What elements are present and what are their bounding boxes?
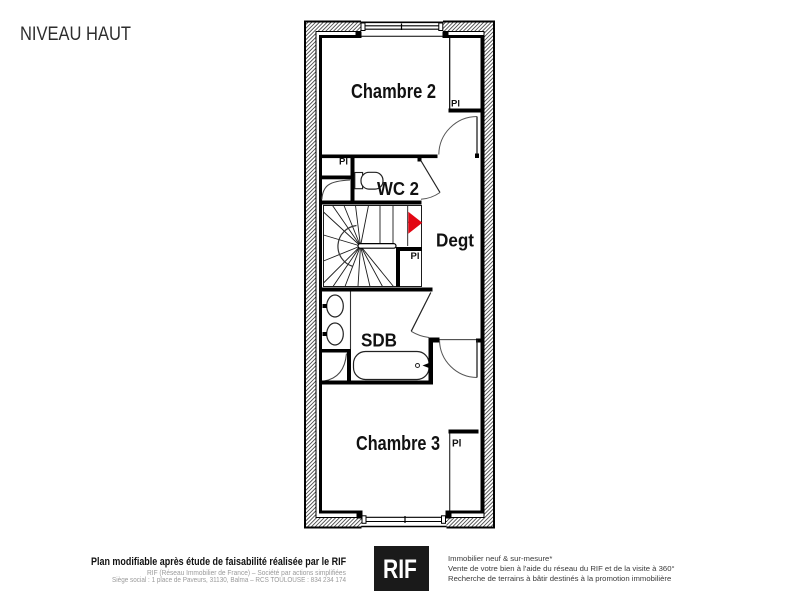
svg-text:Pl: Pl xyxy=(452,439,462,450)
svg-text:Chambre 2: Chambre 2 xyxy=(351,80,436,103)
svg-text:SDB: SDB xyxy=(361,330,397,351)
svg-text:Pl: Pl xyxy=(411,251,420,262)
svg-text:NIVEAU HAUT: NIVEAU HAUT xyxy=(20,24,131,45)
svg-text:Pl: Pl xyxy=(451,99,460,110)
svg-text:WC 2: WC 2 xyxy=(377,179,419,199)
svg-text:Pl: Pl xyxy=(339,157,348,168)
svg-text:Chambre 3: Chambre 3 xyxy=(356,432,440,455)
svg-text:Degt: Degt xyxy=(436,231,474,251)
